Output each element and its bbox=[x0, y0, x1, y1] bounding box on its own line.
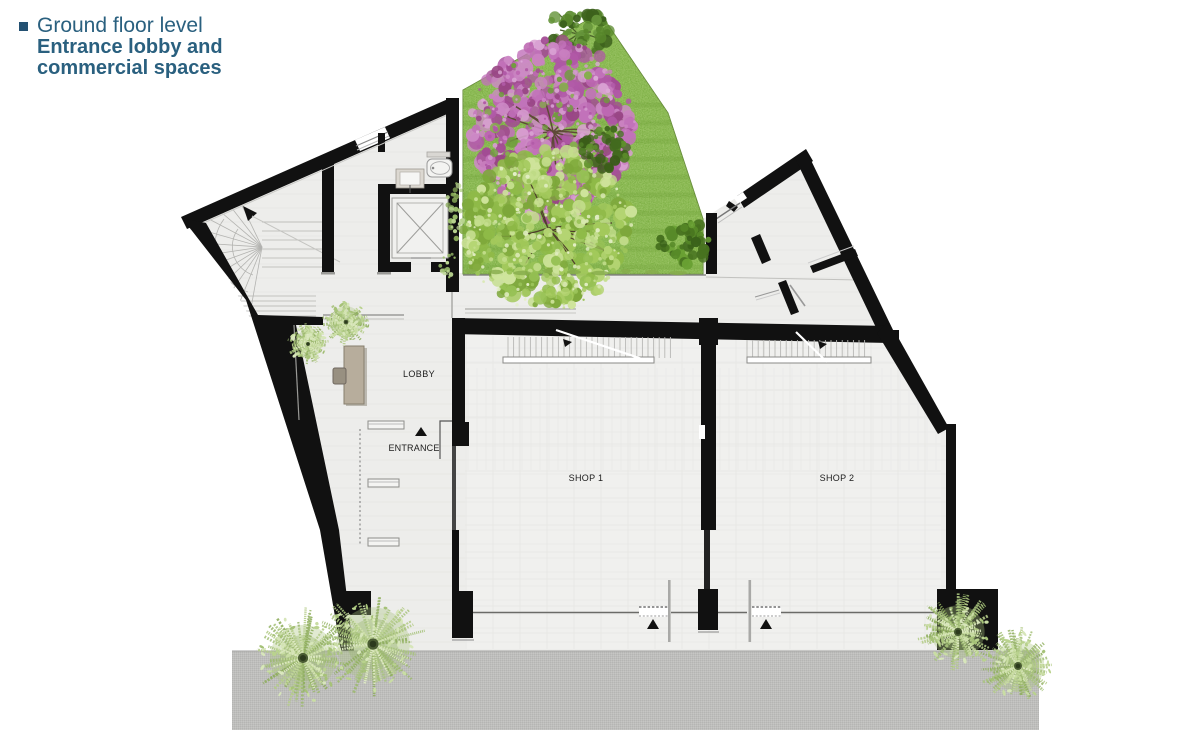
svg-text:LOBBY: LOBBY bbox=[403, 369, 435, 379]
svg-text:SHOP 1: SHOP 1 bbox=[569, 473, 604, 483]
svg-text:SHOP 2: SHOP 2 bbox=[820, 473, 855, 483]
svg-text:ENTRANCE: ENTRANCE bbox=[388, 443, 439, 453]
